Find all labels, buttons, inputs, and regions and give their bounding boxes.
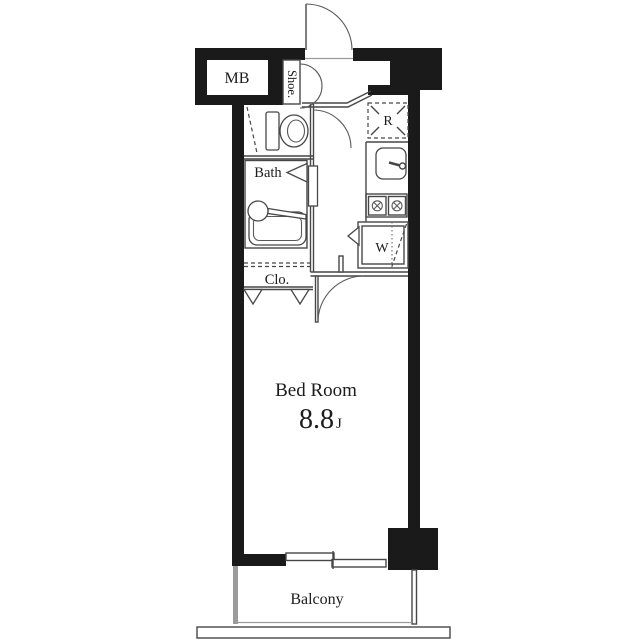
bath-stool — [248, 201, 268, 221]
bath-label: Bath — [254, 165, 282, 181]
wall-top-left — [195, 48, 305, 60]
bath-door-panel — [309, 166, 318, 206]
shoe-closet-label: Shoe. — [285, 70, 299, 98]
bath-door-triangle — [287, 164, 307, 183]
bedroom-door — [316, 276, 365, 322]
closet-door-triangle-right — [291, 290, 309, 305]
bedroom-window — [286, 551, 386, 569]
bedroom-label: Bed Room — [275, 380, 357, 401]
hall-partition — [311, 256, 409, 322]
wall-corner-block-top-right — [390, 48, 442, 90]
toilet-room — [244, 104, 351, 272]
washer-label: W — [375, 241, 389, 256]
window-panel-right — [332, 560, 386, 568]
closet-door-triangle-left — [244, 290, 262, 305]
balcony-label: Balcony — [290, 591, 343, 608]
wall-corner-block-bottom-right — [388, 528, 438, 570]
balcony-wall-right — [412, 570, 417, 624]
window-panel-left — [286, 553, 334, 561]
toilet-door-arc — [314, 110, 352, 148]
washer-door-triangle — [348, 227, 359, 245]
wall-mb-right — [268, 48, 283, 105]
kitchen-sink — [376, 148, 406, 179]
entry-step-line-2 — [302, 95, 372, 107]
hall-wall-stub — [339, 256, 343, 272]
meter-box-label: MB — [225, 70, 250, 87]
labels: MB Shoe. Bath Clo. R W Bed Room 8.8 J Ba… — [225, 70, 394, 608]
bedroom-size-unit-label: J — [336, 416, 342, 432]
bedroom-size-label: 8.8 — [299, 404, 334, 435]
balcony-railing — [197, 627, 450, 638]
wall-bottom-sill — [232, 554, 286, 566]
balcony-wall-left — [233, 566, 238, 624]
toilet — [266, 112, 308, 150]
wall-left — [232, 104, 244, 566]
stove — [366, 194, 407, 217]
wall-right — [408, 88, 420, 530]
toilet-door-swing-dash — [247, 107, 257, 153]
closet-label: Clo. — [265, 272, 290, 288]
apartment-floor-plan: MB Shoe. Bath Clo. R W Bed Room 8.8 J Ba… — [0, 0, 640, 640]
bathtub — [248, 201, 306, 245]
shoe-closet-door-top — [300, 64, 322, 86]
floor-plan-canvas: MB Shoe. Bath Clo. R W Bed Room 8.8 J Ba… — [0, 0, 640, 640]
entrance-door — [306, 4, 352, 50]
refrigerator-label: R — [383, 114, 393, 129]
